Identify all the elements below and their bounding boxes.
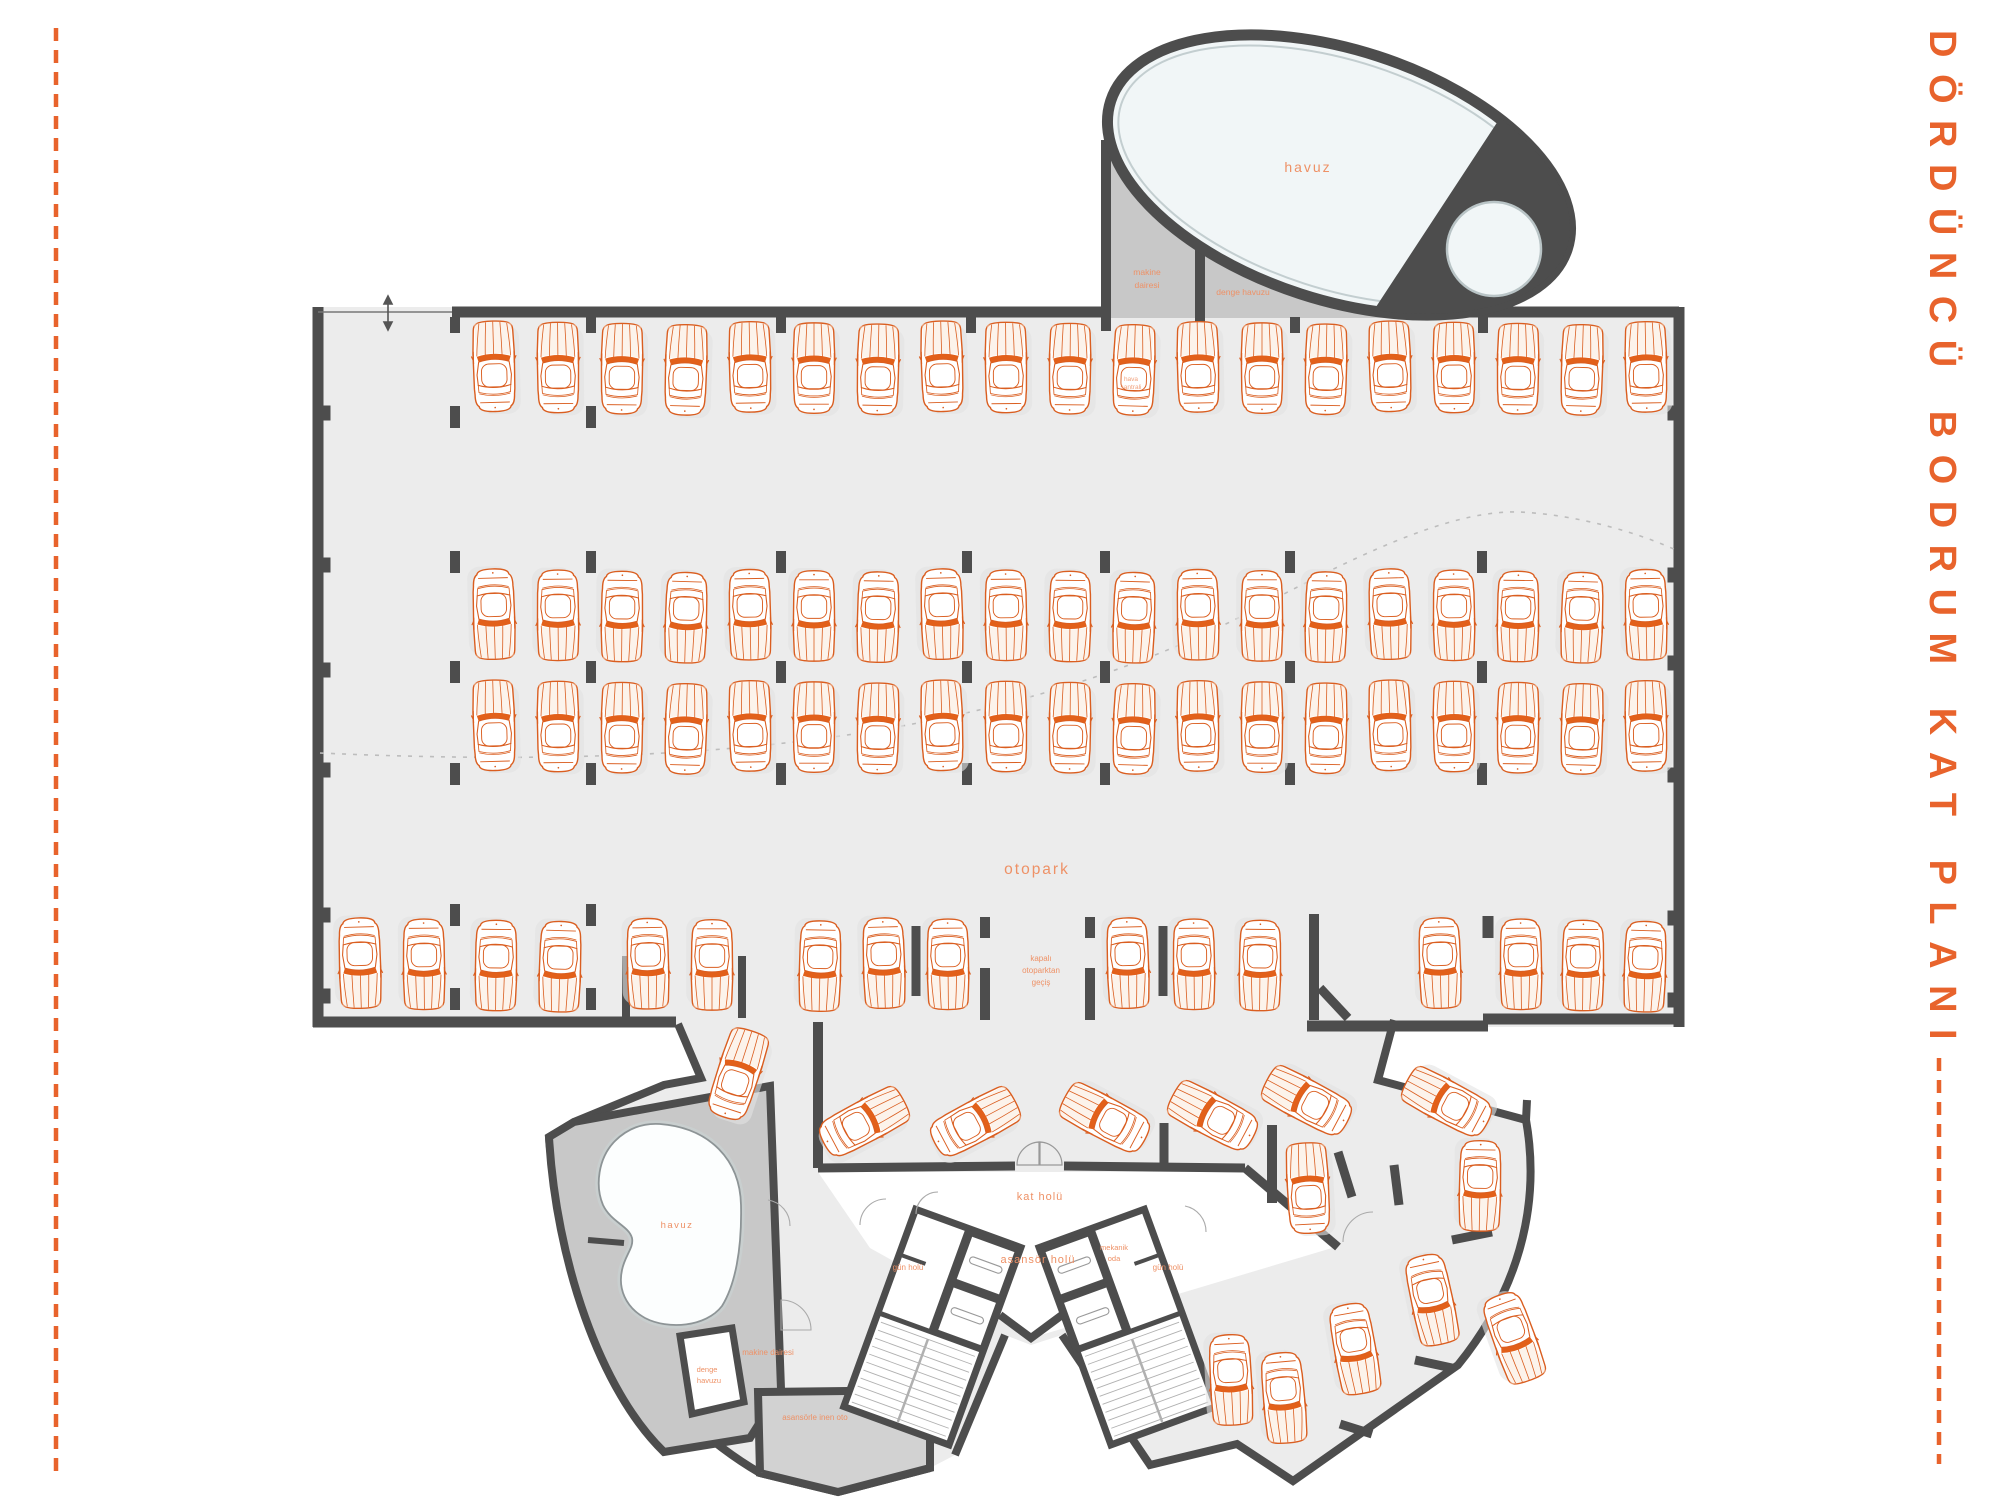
svg-text:oda: oda xyxy=(1108,1254,1121,1263)
svg-text:denge havuzu: denge havuzu xyxy=(1216,287,1270,297)
svg-text:santrali: santrali xyxy=(1121,384,1142,391)
svg-text:havuzu: havuzu xyxy=(697,1376,721,1385)
svg-text:havuz: havuz xyxy=(661,1220,694,1231)
svg-text:havuz: havuz xyxy=(1284,159,1331,175)
svg-text:DÖRDÜNCÜ BODRUM KAT PLANI: DÖRDÜNCÜ BODRUM KAT PLANI xyxy=(1921,30,1964,1056)
svg-text:otopark: otopark xyxy=(1004,861,1070,878)
svg-text:geçiş: geçiş xyxy=(1032,978,1051,987)
svg-text:asansörle inen oto: asansörle inen oto xyxy=(782,1413,848,1422)
svg-text:denge: denge xyxy=(697,1365,718,1374)
svg-text:dairesi: dairesi xyxy=(1134,280,1159,290)
svg-text:gün holü: gün holü xyxy=(893,1263,924,1272)
svg-text:makine dairesi: makine dairesi xyxy=(742,1348,794,1357)
svg-text:gün holü: gün holü xyxy=(1153,1263,1184,1272)
svg-text:otoparktan: otoparktan xyxy=(1022,966,1060,975)
svg-text:hava: hava xyxy=(1124,376,1138,383)
svg-text:kapalı: kapalı xyxy=(1030,954,1051,963)
svg-text:makine: makine xyxy=(1133,267,1161,277)
svg-text:asansör holü: asansör holü xyxy=(1001,1254,1076,1266)
svg-text:mekanik: mekanik xyxy=(1100,1243,1128,1252)
svg-text:kat holü: kat holü xyxy=(1017,1191,1064,1203)
